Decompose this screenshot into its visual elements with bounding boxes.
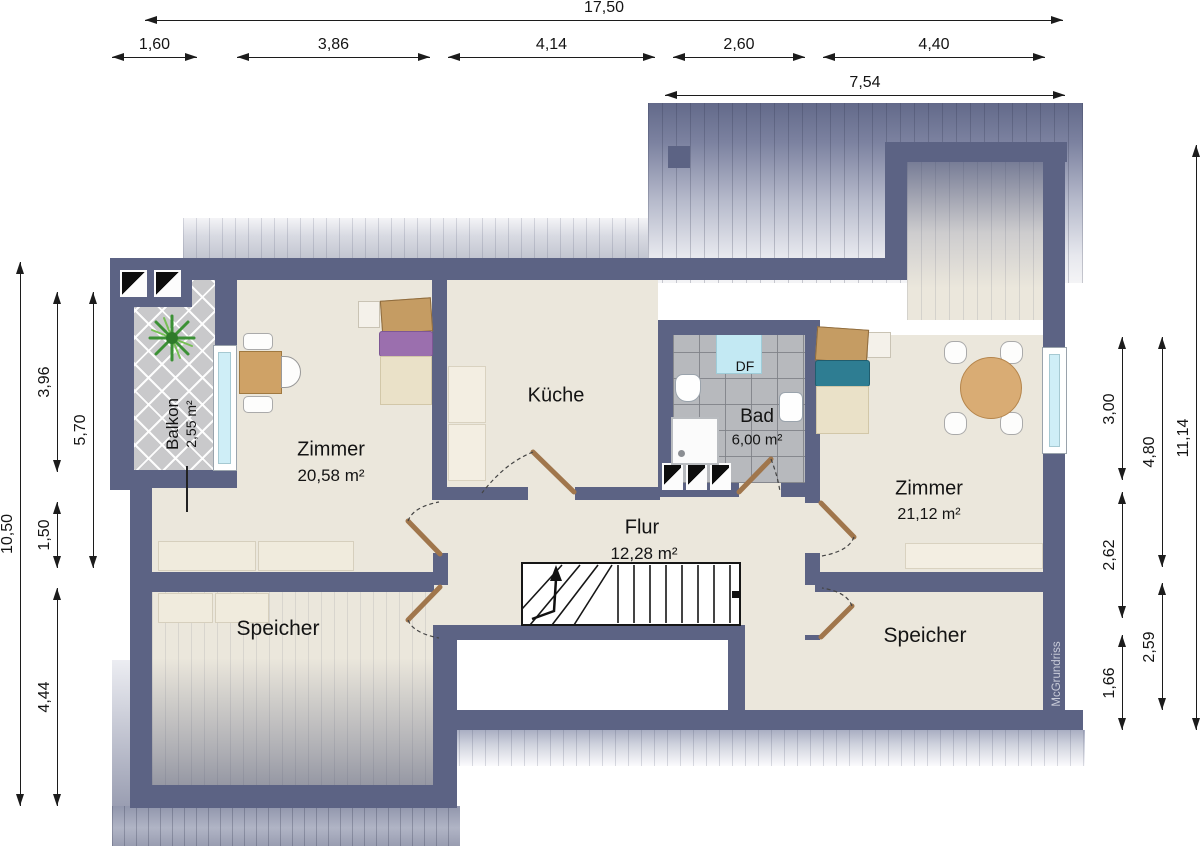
roof-window-icon <box>154 270 181 297</box>
chair <box>243 396 273 413</box>
roof-window-icon <box>710 463 731 490</box>
roof-window-label-df: DF <box>736 358 755 374</box>
dim-left-outer: 10,50 <box>20 262 21 806</box>
sideboard <box>905 543 1043 569</box>
wall-speicher-left-east <box>433 640 457 787</box>
room-area-zimmer-left: 20,58 m² <box>297 466 364 486</box>
dim-top-right-width: 7,54 <box>665 95 1065 96</box>
room-area-zimmer-right: 21,12 m² <box>897 506 960 524</box>
cabinet <box>158 593 213 623</box>
wall-bad-top <box>658 320 820 335</box>
wall-north <box>110 258 907 280</box>
shelf <box>867 332 891 358</box>
floor-plan: Zimmer 20,58 m² Küche Bad 6,00 m² Flur 1… <box>0 0 1200 848</box>
kitchen-unit <box>448 366 486 423</box>
dim-top-segment: 4,40 <box>823 57 1045 58</box>
dim-right-outer: 11,14 <box>1196 145 1197 730</box>
chair <box>944 412 967 435</box>
watermark: McGrundriss <box>1051 641 1063 706</box>
room-label-zimmer-right: Zimmer <box>895 478 963 501</box>
room-label-kueche: Küche <box>528 385 585 408</box>
shower-drain <box>678 450 685 457</box>
kitchen-unit <box>448 424 486 481</box>
roof-strip-bottom <box>433 730 1085 766</box>
dim-top-segment: 3,86 <box>237 57 430 58</box>
roof-strip-bottom-left <box>112 806 460 846</box>
floor-speicher-right-lower <box>745 640 825 710</box>
wall-flur-right-stub-top <box>805 497 820 503</box>
roof-strip-top-left <box>183 218 648 258</box>
toilet <box>675 374 701 402</box>
round-table <box>960 357 1022 419</box>
roof-eave-west <box>112 660 132 806</box>
room-area-bad: 6,00 m² <box>732 432 783 449</box>
wall-right-divider <box>815 572 1048 592</box>
wall-west-lower <box>130 472 152 808</box>
dim-top-segment: 4,14 <box>448 57 655 58</box>
room-label-bad: Bad <box>740 406 774 428</box>
room-label-balkon: Balkon 2,55 m² <box>163 398 199 450</box>
wall-flur-bottom <box>433 625 745 640</box>
chimney <box>668 146 690 168</box>
dim-left-segment: 1,50 <box>57 502 58 568</box>
room-label-speicher-left: Speicher <box>237 617 320 641</box>
dim-top-total: 17,50 <box>145 20 1063 21</box>
roof-window-icon <box>662 463 683 490</box>
dim-right-middle: 4,80 <box>1162 337 1163 567</box>
room-label-flur: Flur <box>625 517 659 540</box>
bed-mattress <box>380 356 432 405</box>
wall-flur-top-left <box>433 487 528 500</box>
floor-speicher-right <box>820 592 1048 710</box>
shower <box>671 417 719 465</box>
wall-left-bottom <box>130 785 457 808</box>
dim-left-mid: 5,70 <box>93 292 94 568</box>
bed-blanket <box>815 360 870 387</box>
wall-flur-left-stub <box>433 553 448 585</box>
wall-raised-left <box>885 142 907 280</box>
bed-headboard <box>380 297 433 334</box>
dim-right-inner: 3,00 <box>1122 337 1123 480</box>
dim-right-inner: 1,66 <box>1122 635 1123 730</box>
wall-south <box>433 710 1083 730</box>
dim-top-segment: 1,60 <box>112 57 197 58</box>
balkon-window-glass <box>218 352 231 464</box>
cabinet <box>158 541 256 571</box>
wall-raised-top <box>885 142 1067 162</box>
shelf <box>358 301 380 328</box>
bed-blanket <box>379 331 433 357</box>
east-window-glass <box>1049 354 1060 447</box>
wall-balkon-bottom <box>130 470 217 488</box>
wall-void-right <box>728 640 745 710</box>
stairwell-void <box>448 640 728 710</box>
roof-window-icon <box>686 463 707 490</box>
desk <box>239 351 282 394</box>
roof-window-icon <box>120 270 147 297</box>
cabinet <box>258 541 354 571</box>
wall-left-divider <box>152 572 434 592</box>
dim-left-segment: 4,44 <box>57 588 58 806</box>
room-label-zimmer-left: Zimmer <box>297 439 365 462</box>
dim-top-segment: 2,60 <box>673 57 805 58</box>
wall-flur-top-right <box>575 487 660 500</box>
room-label-speicher-right: Speicher <box>884 624 967 648</box>
floor-attic-zone <box>907 162 1045 320</box>
bed-mattress <box>816 386 869 434</box>
chair <box>944 341 967 364</box>
wall-flur-right-stub-bottom <box>805 635 820 640</box>
dim-right-inner: 2,62 <box>1122 492 1123 618</box>
bed-headboard <box>815 326 869 364</box>
room-area-flur: 12,28 m² <box>610 544 677 564</box>
dim-left-segment: 3,96 <box>57 292 58 472</box>
chair <box>243 333 273 350</box>
sink <box>779 392 803 422</box>
dim-right-middle: 2,59 <box>1162 583 1163 710</box>
wall-bad-bottom-right <box>781 483 820 497</box>
wall-kueche-west <box>432 280 447 500</box>
